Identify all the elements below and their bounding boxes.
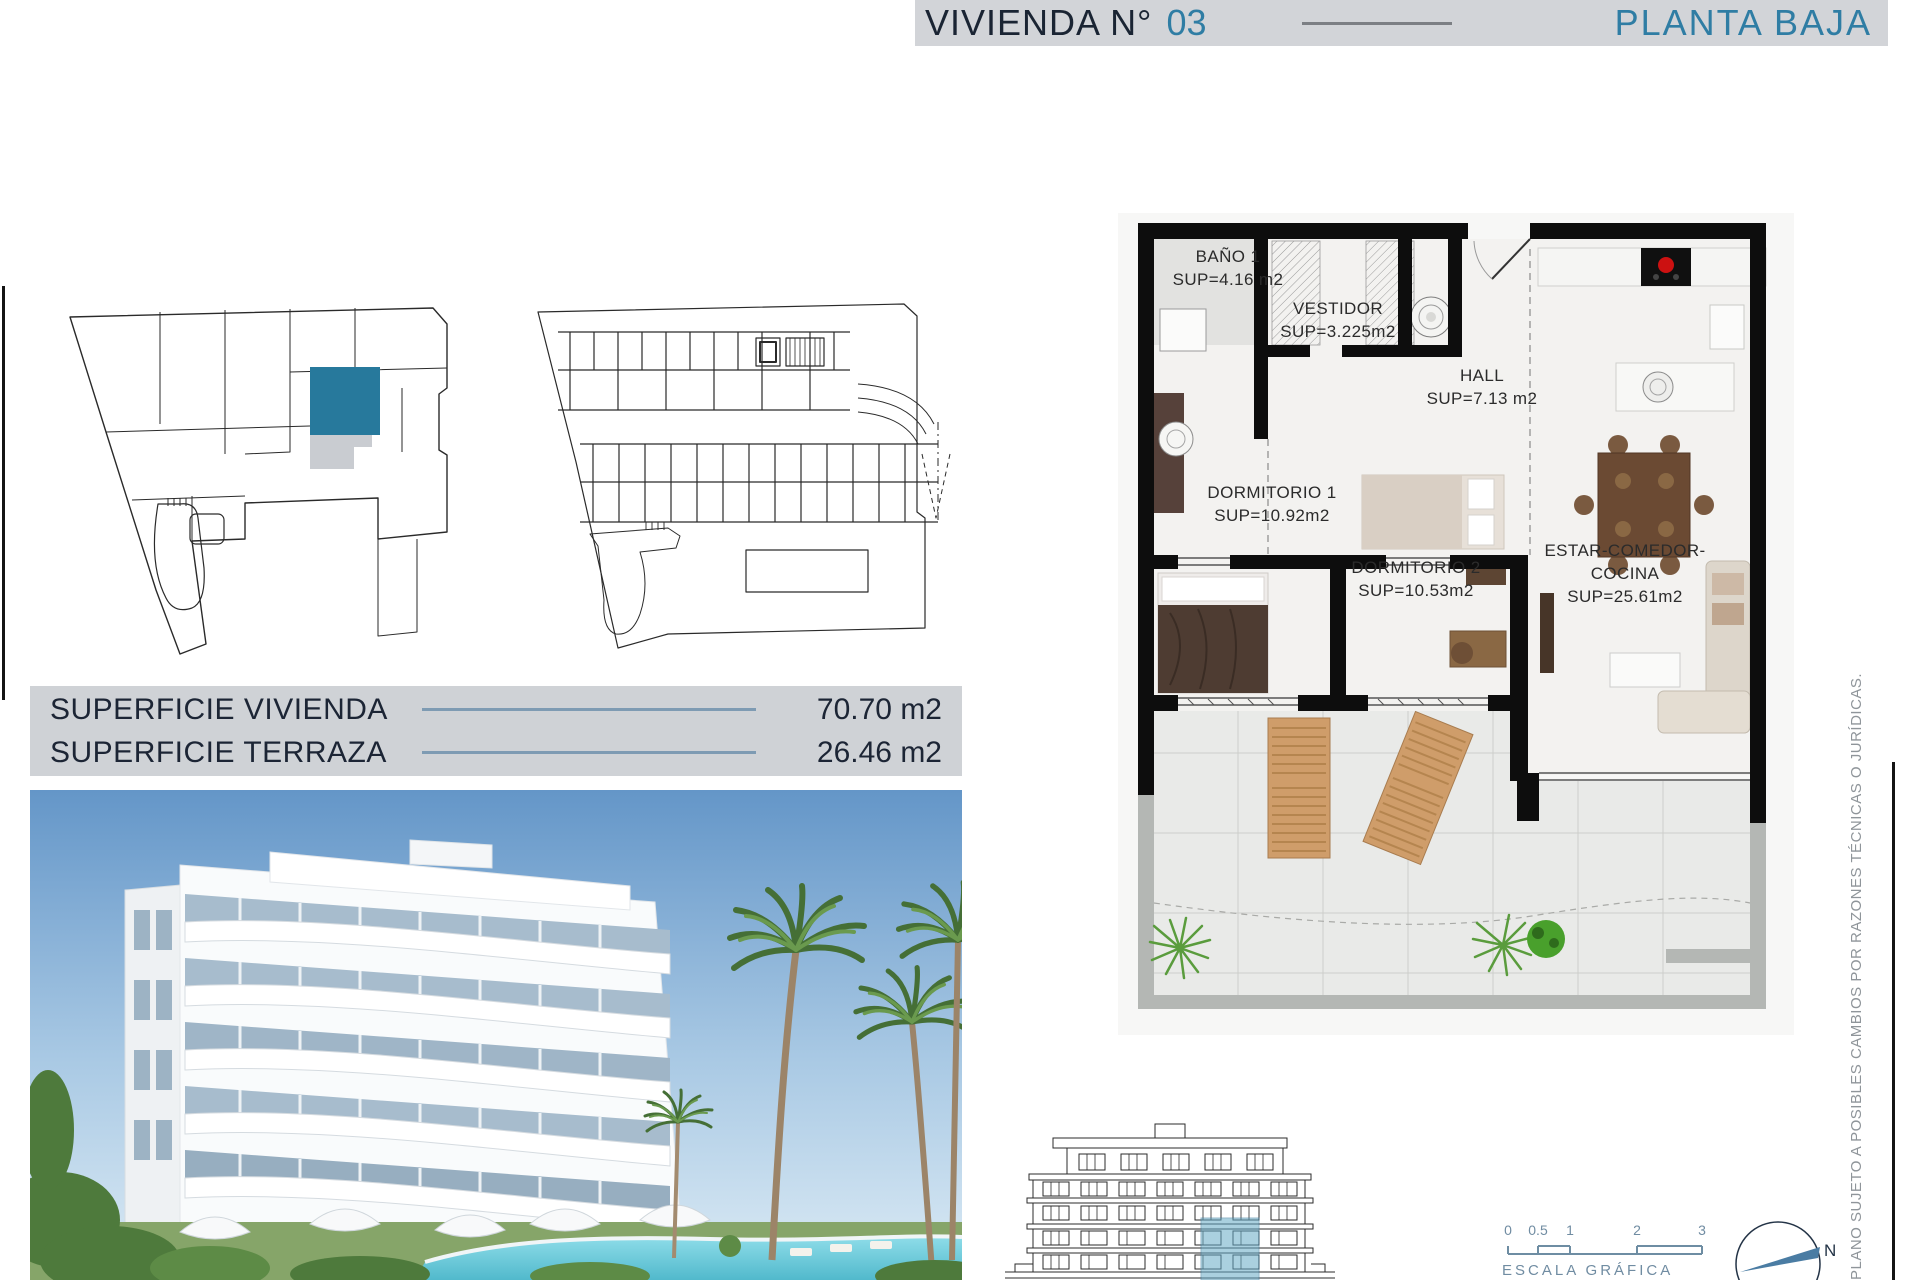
surface-label: SUPERFICIE TERRAZA [50, 736, 422, 770]
sun-lounger [1268, 718, 1330, 858]
scale-label: ESCALA GRÁFICA [1502, 1262, 1673, 1279]
unit-terrace-shade [310, 435, 372, 469]
highlighted-unit [310, 367, 380, 435]
scale-tick: 3 [1698, 1222, 1706, 1238]
page-title: VIVIENDA N° [925, 0, 1152, 46]
surface-value: 26.46 m2 [782, 736, 942, 770]
apartment-building [125, 840, 682, 1260]
right-border-line [1892, 762, 1895, 1280]
header-bar: VIVIENDA N° 03 PLANTA BAJA [915, 0, 1888, 46]
graphic-scale: 0 0.5 1 2 3 ESCALA GRÁFICA [1500, 1222, 1712, 1280]
scale-tick: 2 [1633, 1222, 1641, 1238]
surface-row-vivienda: SUPERFICIE VIVIENDA 70.70 m2 [50, 688, 942, 731]
washing-machine [1411, 297, 1451, 337]
room-label-dormitorio-2: DORMITORIO 2 SUP=10.53m2 [1331, 557, 1501, 603]
floor-plan [1118, 213, 1794, 1035]
north-label: N [1824, 1241, 1836, 1260]
left-border-line [2, 286, 5, 700]
scale-tick: 1 [1566, 1222, 1574, 1238]
leader-line [422, 708, 756, 711]
unit-number: 03 [1166, 0, 1206, 46]
header-divider-line [1302, 22, 1452, 25]
room-label-vestidor: VESTIDOR SUP=3.225m2 [1263, 298, 1413, 344]
site-plan-garage [518, 282, 970, 666]
legal-disclaimer: PLANO SUJETO A POSIBLES CAMBIOS POR RAZO… [1848, 766, 1882, 1280]
building-elevation [1005, 1112, 1335, 1280]
surface-summary-bar: SUPERFICIE VIVIENDA 70.70 m2 SUPERFICIE … [30, 686, 962, 776]
building-render-photo [30, 790, 962, 1280]
surface-label: SUPERFICIE VIVIENDA [50, 693, 422, 727]
site-plan-situation [40, 292, 490, 664]
leader-line [422, 751, 756, 754]
room-label-estar-comedor-cocina: ESTAR-COMEDOR-COCINA SUP=25.61m2 [1525, 540, 1725, 609]
surface-value: 70.70 m2 [782, 693, 942, 727]
north-compass: N [1722, 1218, 1852, 1280]
compass-needle [1740, 1247, 1820, 1272]
terrace-bush [1527, 920, 1565, 958]
highlighted-elevation-unit [1201, 1218, 1259, 1280]
brochure-page: VIVIENDA N° 03 PLANTA BAJA [0, 0, 1920, 1280]
bed-dormitorio-1 [1158, 573, 1268, 693]
surface-row-terraza: SUPERFICIE TERRAZA 26.46 m2 [50, 731, 942, 774]
floor-name: PLANTA BAJA [1615, 0, 1872, 46]
scale-bar-graphic [1500, 1238, 1712, 1258]
room-label-hall: HALL SUP=7.13 m2 [1407, 365, 1557, 411]
scale-tick: 0.5 [1528, 1222, 1547, 1238]
room-label-dormitorio-1: DORMITORIO 1 SUP=10.92m2 [1197, 482, 1347, 528]
scale-tick: 0 [1504, 1222, 1512, 1238]
room-label-bano1: BAÑO 1 SUP=4.16 m2 [1153, 246, 1303, 292]
